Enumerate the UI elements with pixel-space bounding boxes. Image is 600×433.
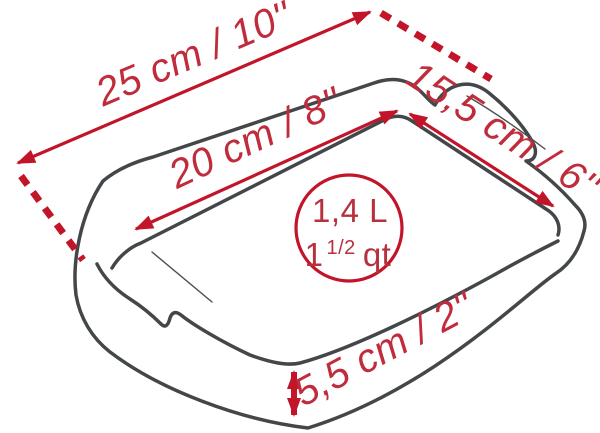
- capacity-quarts-fraction: 1/2: [327, 237, 356, 259]
- dimension-diagram: 25 cm / 10'' 20 cm / 8'' 15,5 cm / 6'' 5…: [0, 0, 600, 433]
- capacity-quarts-unit: qt: [363, 236, 392, 273]
- inner-length-label: 20 cm / 8'': [161, 79, 349, 198]
- dish-corner-seam-line: [152, 252, 212, 302]
- outer-length-extension-left: [21, 176, 83, 260]
- capacity-quarts: 11/2qt: [305, 236, 392, 273]
- dimension-annotations: 25 cm / 10'' 20 cm / 8'' 15,5 cm / 6'' 5…: [18, 0, 600, 415]
- capacity-liters: 1,4 L: [312, 192, 388, 229]
- diagram-canvas: 25 cm / 10'' 20 cm / 8'' 15,5 cm / 6'' 5…: [0, 0, 600, 433]
- dish-wall-top-edge: [97, 241, 558, 364]
- capacity-quarts-whole: 1: [305, 236, 324, 273]
